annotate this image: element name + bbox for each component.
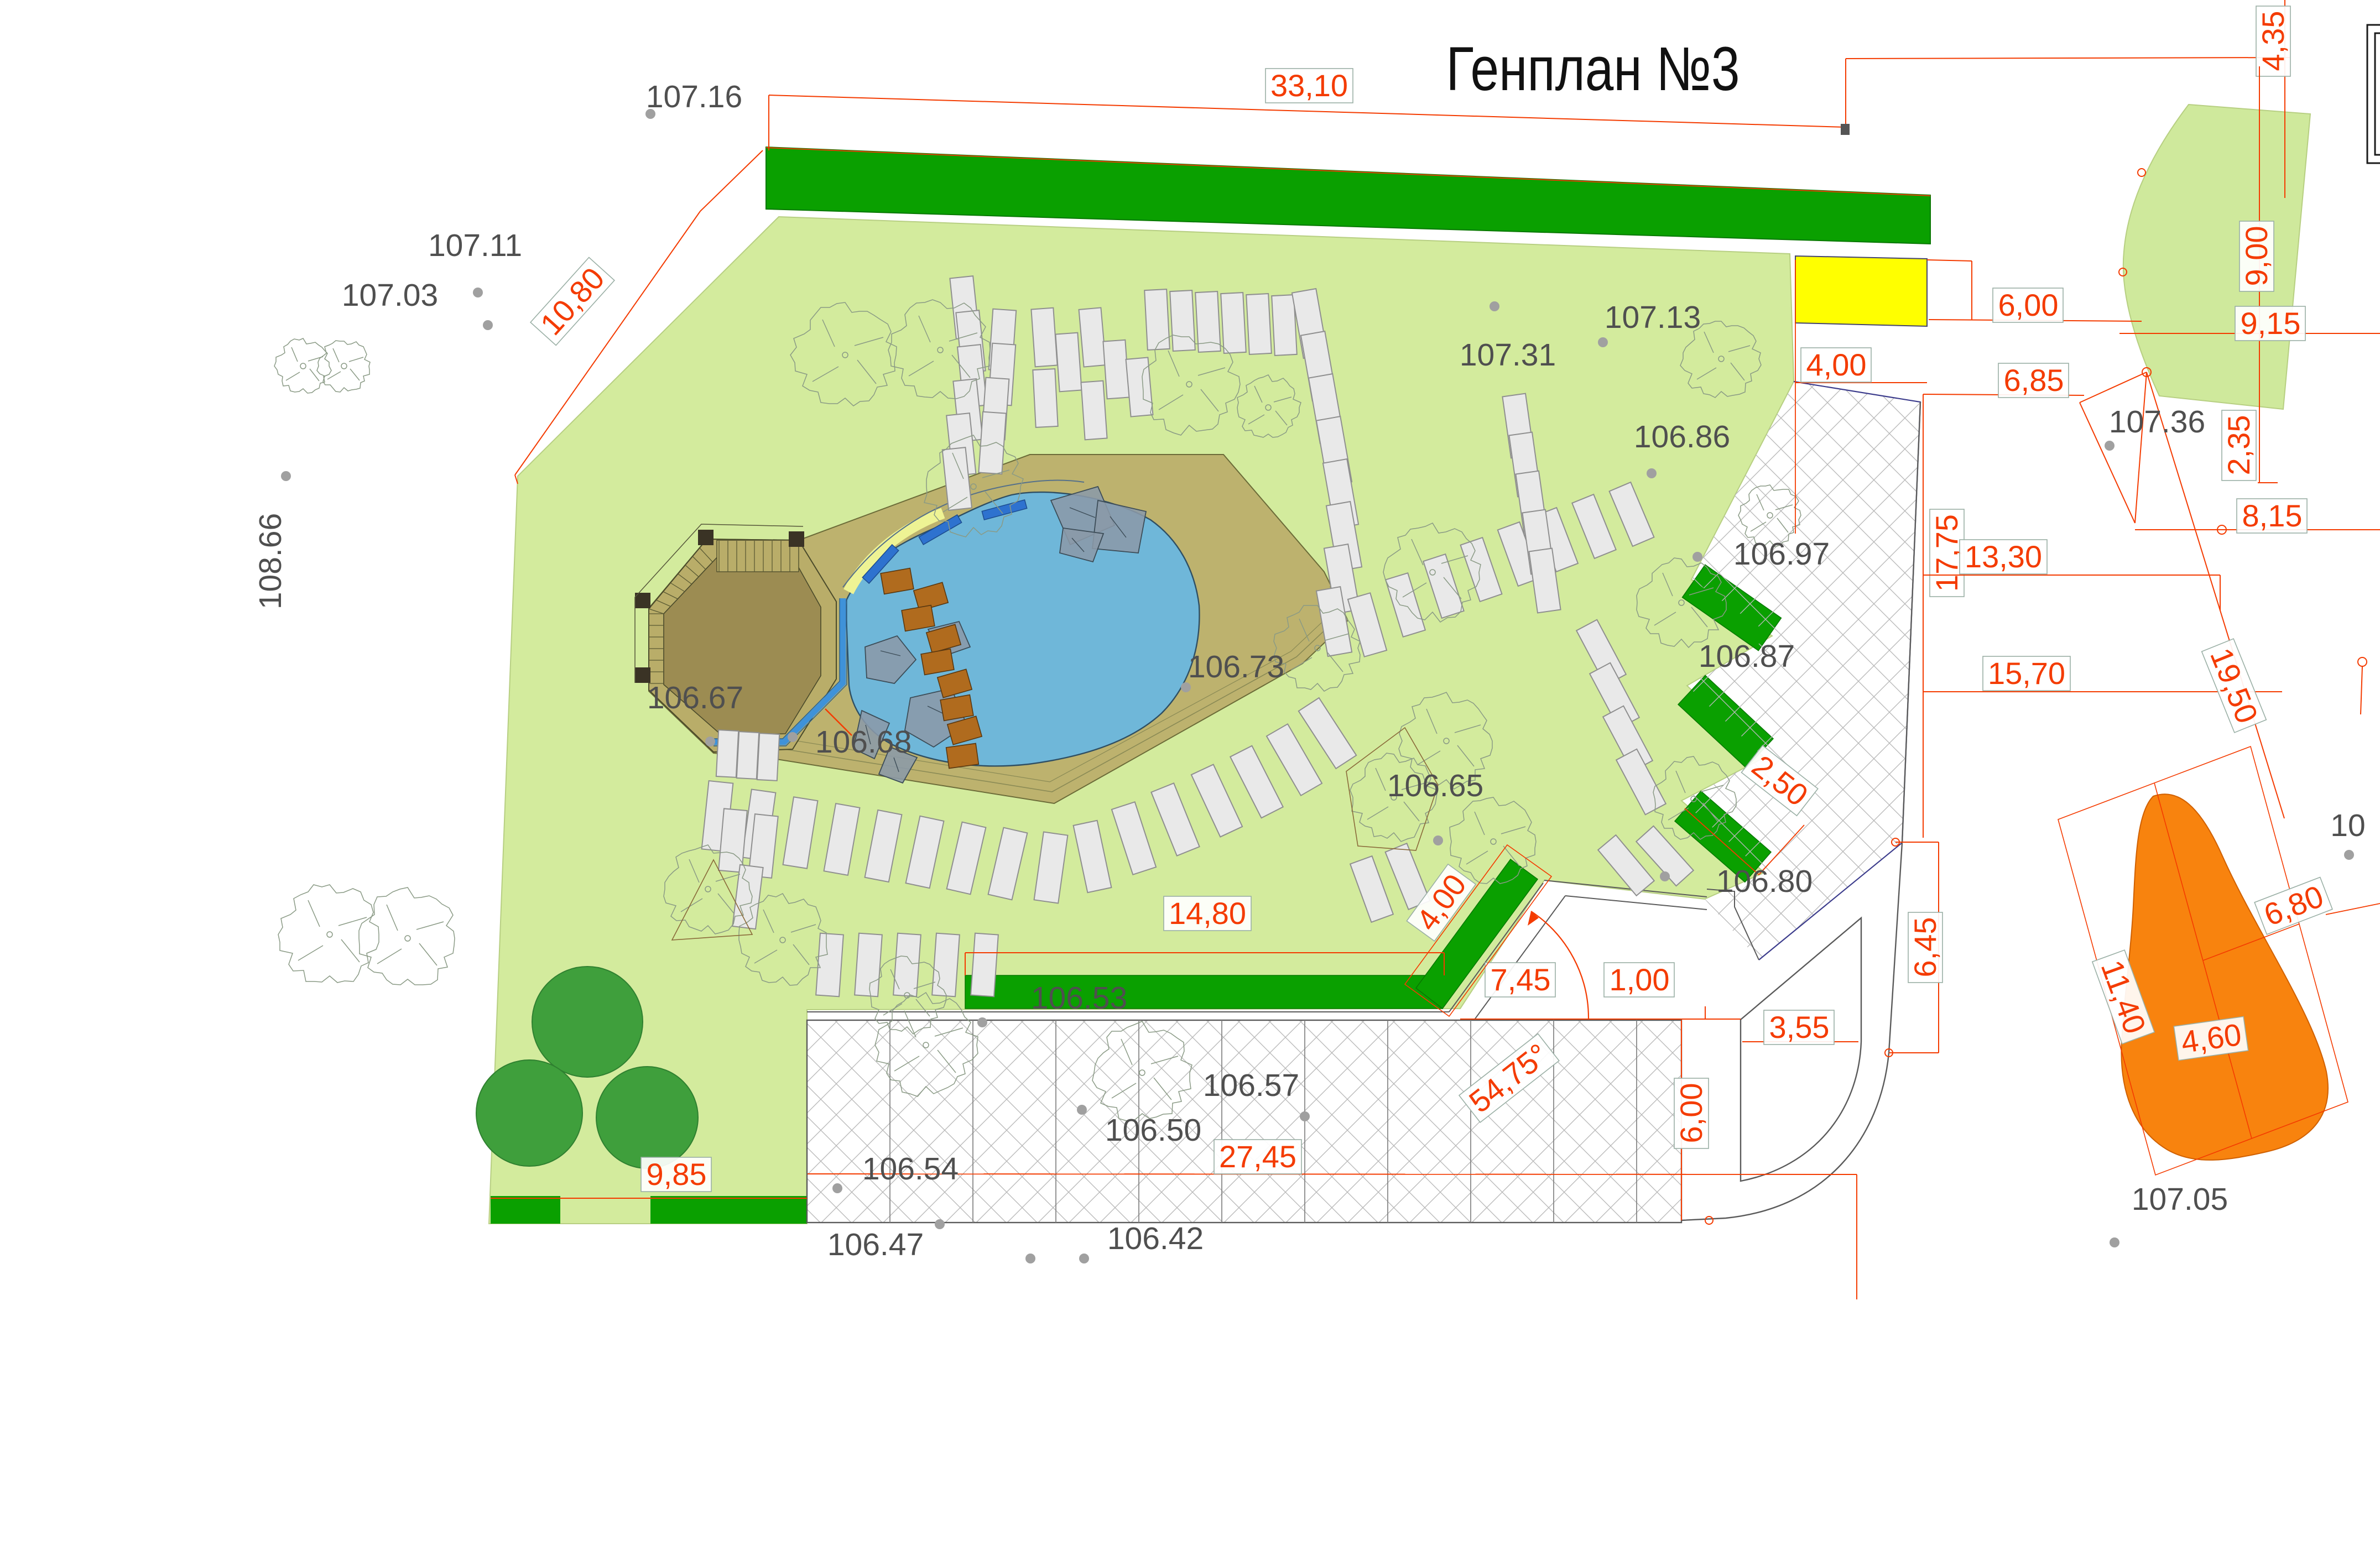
svg-text:107.13: 107.13 (1605, 300, 1701, 335)
svg-text:14,80: 14,80 (1169, 896, 1246, 931)
svg-text:108.66: 108.66 (253, 513, 288, 609)
svg-text:6,00: 6,00 (1674, 1083, 1709, 1143)
svg-text:106.57: 106.57 (1203, 1068, 1299, 1103)
svg-text:106.68: 106.68 (815, 724, 912, 760)
svg-text:13,30: 13,30 (1965, 539, 2042, 574)
svg-text:19,50: 19,50 (2204, 643, 2265, 728)
svg-text:106.87: 106.87 (1699, 639, 1795, 674)
svg-text:10: 10 (2330, 808, 2365, 843)
svg-text:106.65: 106.65 (1387, 768, 1483, 803)
svg-text:27,45: 27,45 (1219, 1139, 1296, 1174)
svg-text:106.53: 106.53 (1031, 980, 1127, 1016)
svg-text:106.80: 106.80 (1716, 864, 1813, 899)
svg-text:Генплан №3: Генплан №3 (1446, 34, 1740, 103)
svg-text:107.36: 107.36 (2109, 404, 2205, 440)
svg-text:107.03: 107.03 (342, 278, 438, 313)
svg-text:15,70: 15,70 (1988, 656, 2065, 691)
svg-text:17,75: 17,75 (1929, 514, 1964, 592)
svg-text:7,45: 7,45 (1491, 962, 1551, 997)
svg-text:106.73: 106.73 (1188, 649, 1284, 685)
svg-text:106.67: 106.67 (647, 680, 743, 716)
svg-text:6,85: 6,85 (2004, 363, 2064, 398)
svg-text:33,10: 33,10 (1270, 68, 1348, 103)
svg-text:2,35: 2,35 (2221, 415, 2256, 476)
svg-text:106.86: 106.86 (1634, 419, 1730, 455)
svg-text:6,00: 6,00 (1998, 288, 2059, 322)
svg-text:3,55: 3,55 (1769, 1010, 1830, 1045)
svg-text:6,45: 6,45 (1908, 917, 1942, 978)
svg-text:106.47: 106.47 (827, 1227, 924, 1262)
svg-text:1,00: 1,00 (1610, 962, 1670, 997)
svg-text:107.11: 107.11 (428, 228, 522, 263)
svg-text:9,00: 9,00 (2239, 226, 2274, 286)
svg-text:9,85: 9,85 (647, 1157, 707, 1192)
svg-text:106.42: 106.42 (1107, 1221, 1204, 1256)
svg-text:107.05: 107.05 (2132, 1182, 2228, 1217)
svg-text:106.54: 106.54 (862, 1151, 959, 1187)
svg-text:106.50: 106.50 (1105, 1113, 1201, 1148)
svg-text:8,15: 8,15 (2242, 498, 2303, 533)
svg-text:107.16: 107.16 (646, 79, 742, 114)
svg-text:4,00: 4,00 (1806, 347, 1867, 382)
svg-text:106.97: 106.97 (1733, 536, 1830, 572)
svg-text:4,35: 4,35 (2256, 11, 2290, 71)
svg-text:107.31: 107.31 (1460, 337, 1556, 373)
svg-text:9,15: 9,15 (2241, 306, 2301, 341)
